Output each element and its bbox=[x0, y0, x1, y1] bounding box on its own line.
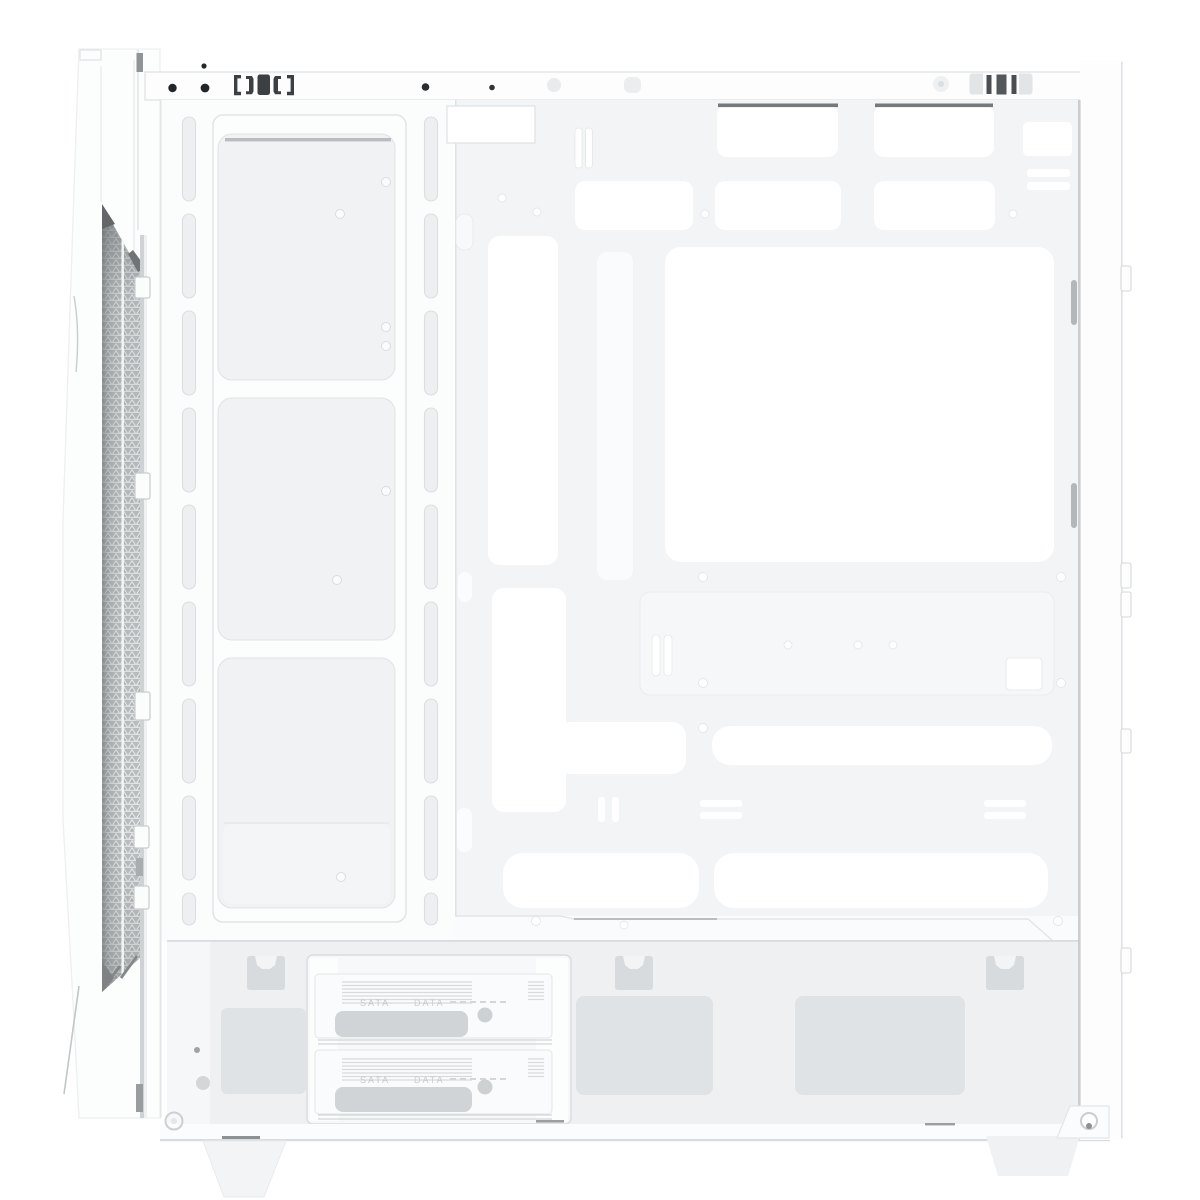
svg-text:SATA: SATA bbox=[360, 998, 390, 1008]
svg-text:DATA: DATA bbox=[414, 1075, 445, 1085]
svg-text:SATA: SATA bbox=[360, 1075, 390, 1085]
svg-text:DATA: DATA bbox=[414, 998, 445, 1008]
